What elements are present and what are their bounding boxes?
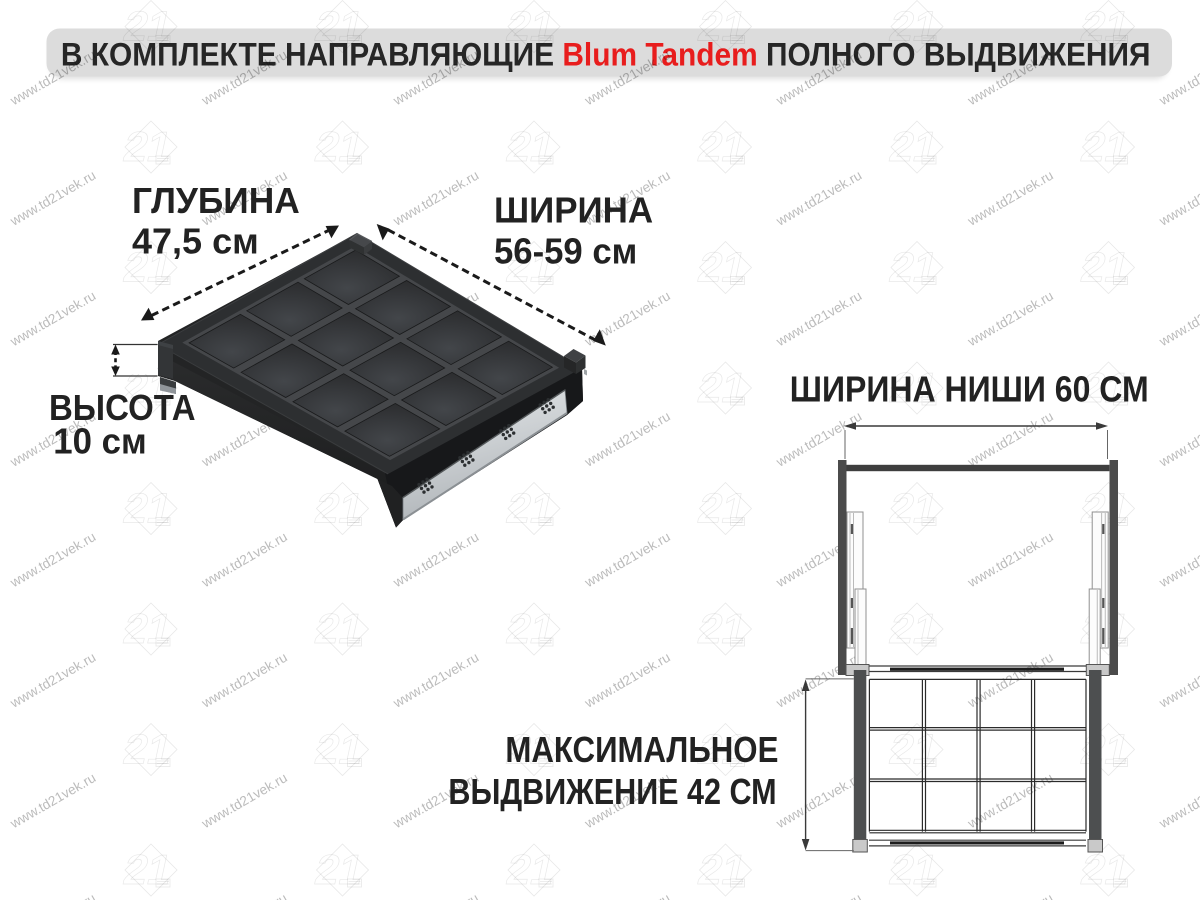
svg-text:ВЫДВИЖЕНИЕ 42 СМ: ВЫДВИЖЕНИЕ 42 СМ <box>448 773 776 813</box>
svg-text:МАКСИМАЛЬНОЕ: МАКСИМАЛЬНОЕ <box>505 731 778 771</box>
svg-text:ШИРИНА НИШИ 60 СМ: ШИРИНА НИШИ 60 СМ <box>790 370 1149 410</box>
svg-text:47,5 см: 47,5 см <box>132 221 259 262</box>
svg-text:56-59 см: 56-59 см <box>494 232 637 272</box>
svg-text:10 см: 10 см <box>53 422 146 462</box>
svg-text:ГЛУБИНА: ГЛУБИНА <box>132 181 300 221</box>
svg-text:ШИРИНА: ШИРИНА <box>494 190 653 231</box>
